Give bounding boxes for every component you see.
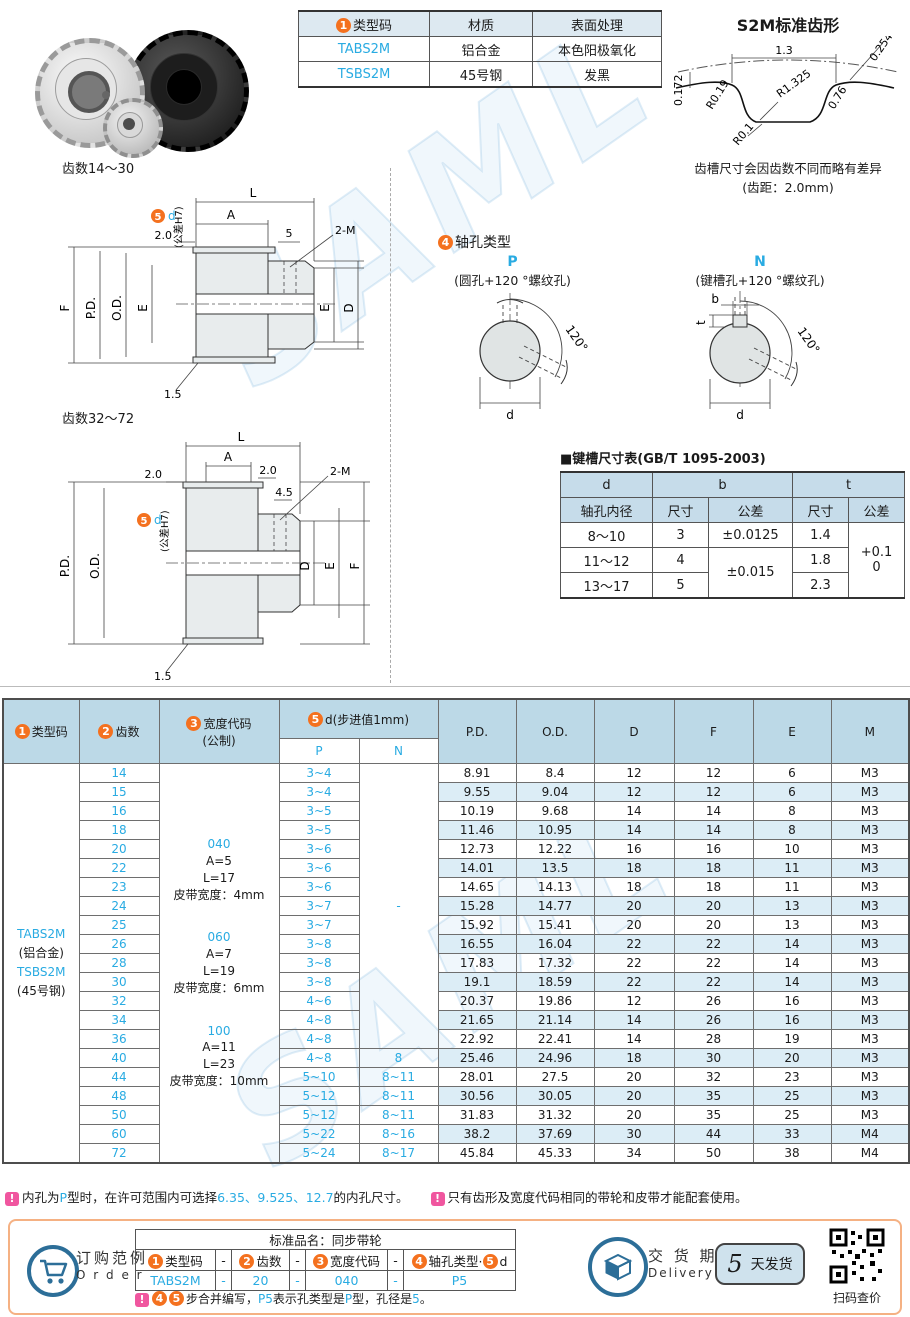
dim-flange-2.0: 2.0 (155, 229, 173, 242)
pd-cell: 17.83 (438, 954, 516, 973)
circled-1: 1 (336, 18, 351, 33)
header-p: P (279, 739, 359, 764)
header-teeth: 2齿数 (79, 699, 159, 764)
circled-4: 4 (438, 235, 453, 250)
shaft-hole-title: 4轴孔类型 (438, 232, 511, 252)
keyway-b-size: 3 (653, 523, 709, 548)
f-cell: 14 (674, 802, 753, 821)
od-cell: 9.04 (516, 783, 594, 802)
tol-line: 0 (849, 560, 904, 575)
pd-cell: 38.2 (438, 1125, 516, 1144)
e-cell: 33 (753, 1125, 831, 1144)
od-cell: 22.41 (516, 1030, 594, 1049)
od-cell: 16.04 (516, 935, 594, 954)
dim-2m: 2-M (335, 224, 355, 237)
dim-pitch: 1.3 (775, 44, 793, 57)
f-cell: 30 (674, 1049, 753, 1068)
table-row: 505~128~1131.8331.32203525M3 (3, 1106, 909, 1125)
circled-2: 2 (239, 1254, 254, 1269)
p-range-cell: 3~8 (279, 973, 359, 992)
m-cell: M3 (831, 840, 909, 859)
table-row: 283~817.8317.32222214M3 (3, 954, 909, 973)
e-cell: 11 (753, 859, 831, 878)
pd-cell: 9.55 (438, 783, 516, 802)
n-range-cell: 8 (359, 1049, 438, 1068)
order-product-name: 标准品名：同步带轮 (136, 1230, 516, 1250)
materials-header-material: 材质 (430, 11, 533, 37)
teeth-cell: 28 (79, 954, 159, 973)
p-range-cell: 3~4 (279, 783, 359, 802)
teeth-cell: 18 (79, 821, 159, 840)
dim-E-left: E (136, 304, 150, 312)
pd-cell: 31.83 (438, 1106, 516, 1125)
dash: - (216, 1250, 232, 1271)
order-header-4: 4轴孔类型·5d (404, 1250, 516, 1271)
e-cell: 13 (753, 916, 831, 935)
catalog-page: SAML SAML 1类型码 材质 表面处理 TABS2M 铝合金 本色阳极氧化 (0, 0, 910, 1317)
e-cell: 16 (753, 1011, 831, 1030)
pd-cell: 15.92 (438, 916, 516, 935)
d-cell: 18 (594, 1049, 674, 1068)
e-cell: 14 (753, 935, 831, 954)
dim-D: D (342, 303, 356, 312)
f-cell: 22 (674, 935, 753, 954)
d-cell: 20 (594, 916, 674, 935)
teeth-cell: 36 (79, 1030, 159, 1049)
pd-cell: 22.92 (438, 1030, 516, 1049)
table-row: 1类型码 材质 表面处理 (299, 11, 662, 37)
dim-t: t (694, 320, 708, 325)
keyway-table-title: ■键槽尺寸表(GB/T 1095-2003) (560, 448, 905, 467)
dim-2m: 2-M (330, 465, 350, 478)
drawing1: 2-M L A 2.0 5 5 d (公差H7) F P.D. O.D. E (48, 172, 390, 404)
surface-value: 发黑 (533, 62, 662, 88)
table-row: 303~819.118.59222214M3 (3, 973, 909, 992)
pd-cell: 20.37 (438, 992, 516, 1011)
table-row: 404~8825.4624.96183020M3 (3, 1049, 909, 1068)
table-row: 445~108~1128.0127.5203223M3 (3, 1068, 909, 1087)
od-cell: 8.4 (516, 764, 594, 783)
teeth-cell: 22 (79, 859, 159, 878)
f-cell: 50 (674, 1144, 753, 1164)
m-cell: M3 (831, 992, 909, 1011)
f-cell: 12 (674, 764, 753, 783)
p-range-cell: 3~7 (279, 897, 359, 916)
warning-icon: ! (431, 1192, 445, 1206)
dim-120deg: 120° (795, 325, 823, 357)
keyway-header-d: d (561, 472, 653, 498)
product-photo (15, 10, 280, 150)
m-cell: M3 (831, 821, 909, 840)
f-cell: 35 (674, 1106, 753, 1125)
p-range-cell: 3~4 (279, 764, 359, 783)
circled-5: 5 (155, 212, 162, 223)
dim-E-right: E (318, 304, 332, 312)
pd-cell: 10.19 (438, 802, 516, 821)
teeth-cell: 40 (79, 1049, 159, 1068)
table-row: 153~49.559.0412126M3 (3, 783, 909, 802)
p-range-cell: 5~24 (279, 1144, 359, 1164)
teeth-cell: 44 (79, 1068, 159, 1087)
hole-type-p-diagram: 120° d (415, 289, 610, 424)
table-row: 324~620.3719.86122616M3 (3, 992, 909, 1011)
header-width-code: 3宽度代码(公制) (159, 699, 279, 764)
od-cell: 14.13 (516, 878, 594, 897)
dash: - (290, 1271, 306, 1291)
order-header-2: 2齿数 (232, 1250, 290, 1271)
keyway-header-tol: 公差 (849, 498, 905, 523)
e-cell: 13 (753, 897, 831, 916)
f-cell: 18 (674, 859, 753, 878)
keyway-d-range: 8～10 (561, 523, 653, 548)
order-value-type: TABS2M (136, 1271, 216, 1291)
warning-icon: ! (135, 1293, 149, 1307)
pd-cell: 14.65 (438, 878, 516, 897)
dim-flank: 0.76 (826, 84, 850, 112)
d-cell: 14 (594, 1011, 674, 1030)
od-cell: 21.14 (516, 1011, 594, 1030)
n-range-cell: 8~16 (359, 1125, 438, 1144)
table-row: 183~511.4610.9514148M3 (3, 821, 909, 840)
od-cell: 30.05 (516, 1087, 594, 1106)
teeth-cell: 23 (79, 878, 159, 897)
p-range-cell: 4~8 (279, 1011, 359, 1030)
dim-1.5: 1.5 (154, 670, 172, 683)
delivery-label-en: Delivery (648, 1266, 718, 1280)
e-cell: 19 (753, 1030, 831, 1049)
pd-cell: 21.65 (438, 1011, 516, 1030)
od-cell: 9.68 (516, 802, 594, 821)
materials-header-type: 1类型码 (299, 11, 430, 37)
e-cell: 11 (753, 878, 831, 897)
header-E: E (753, 699, 831, 764)
dim-r-root: R0.1 (730, 120, 756, 148)
table-row: 725~248~1745.8445.33345038M4 (3, 1144, 909, 1164)
p-range-cell: 3~5 (279, 821, 359, 840)
m-cell: M3 (831, 764, 909, 783)
e-cell: 8 (753, 821, 831, 840)
f-cell: 28 (674, 1030, 753, 1049)
table-row: 485~128~1130.5630.05203525M3 (3, 1087, 909, 1106)
p-range-cell: 5~12 (279, 1106, 359, 1125)
header-d: 5d(步进值1mm) (279, 699, 438, 739)
keyway-b-size: 4 (653, 548, 709, 573)
pd-cell: 30.56 (438, 1087, 516, 1106)
teeth-cell: 20 (79, 840, 159, 859)
m-cell: M3 (831, 1106, 909, 1125)
keyway-section: ■键槽尺寸表(GB/T 1095-2003) d b t 轴孔内径 尺寸 公差 … (560, 448, 905, 599)
f-cell: 16 (674, 840, 753, 859)
od-cell: 19.86 (516, 992, 594, 1011)
f-cell: 26 (674, 992, 753, 1011)
circled-5: 5 (308, 712, 323, 727)
surface-value: 本色阳极氧化 (533, 37, 662, 62)
d-cell: 18 (594, 859, 674, 878)
d-cell: 22 (594, 935, 674, 954)
order-value-teeth: 20 (232, 1271, 290, 1291)
keyway-b-tol: ±0.015 (709, 548, 793, 599)
e-cell: 25 (753, 1087, 831, 1106)
main-selection-table: 1类型码 2齿数 3宽度代码(公制) 5d(步进值1mm) P.D. O.D. … (2, 698, 910, 1164)
dim-5: 5 (286, 227, 293, 240)
header-type-code: 1类型码 (3, 699, 79, 764)
delivery-label-cn: 交 货 期 (648, 1245, 718, 1266)
qr-caption: 扫码查价 (828, 1289, 886, 1306)
p-range-cell: 3~7 (279, 916, 359, 935)
order-example-table: 标准品名：同步带轮 1类型码 - 2齿数 - 3宽度代码 - 4轴孔类型·5d … (135, 1229, 516, 1291)
materials-table: 1类型码 材质 表面处理 TABS2M 铝合金 本色阳极氧化 TSBS2M 45… (298, 10, 662, 88)
p-range-cell: 3~8 (279, 935, 359, 954)
tooth-profile-section: S2M标准齿形 1.3 0.254 R1.325 R0.19 0.76 0.17… (668, 12, 908, 198)
dim-r-main: R1.325 (774, 67, 813, 101)
d-cell: 20 (594, 1106, 674, 1125)
header-pd: P.D. (438, 699, 516, 764)
m-cell: M3 (831, 1087, 909, 1106)
hole-type-n-desc: (键槽孔+120 °螺纹孔) (625, 270, 895, 289)
p-range-cell: 5~22 (279, 1125, 359, 1144)
hole-type-n-code: N (625, 254, 895, 270)
p-range-cell: 4~6 (279, 992, 359, 1011)
dash: - (290, 1250, 306, 1271)
pd-cell: 14.01 (438, 859, 516, 878)
dim-tolerance: (公差H7) (158, 510, 171, 552)
dash: - (388, 1271, 404, 1291)
width-code-cell: 040A=5L=17皮带宽度：4mm060A=7L=19皮带宽度：6mm100A… (159, 764, 279, 1164)
teeth-cell: 50 (79, 1106, 159, 1125)
tol-line: +0.1 (849, 545, 904, 560)
pd-cell: 12.73 (438, 840, 516, 859)
table-row: 1类型码 - 2齿数 - 3宽度代码 - 4轴孔类型·5d (136, 1250, 516, 1271)
dim-F: F (58, 304, 72, 311)
p-range-cell: 3~5 (279, 802, 359, 821)
type-code-cell: TABS2M(铝合金)TSBS2M(45号钢) (3, 764, 79, 1164)
keyway-d-range: 11～12 (561, 548, 653, 573)
m-cell: M3 (831, 1049, 909, 1068)
teeth-cell: 26 (79, 935, 159, 954)
keyway-t-size: 1.8 (793, 548, 849, 573)
od-cell: 45.33 (516, 1144, 594, 1164)
d-cell: 18 (594, 878, 674, 897)
circled-1: 1 (148, 1254, 163, 1269)
n-range-cell: 8~11 (359, 1087, 438, 1106)
table-row: TABS2M - 20 - 040 - P5 (136, 1271, 516, 1291)
pd-cell: 45.84 (438, 1144, 516, 1164)
dim-PD: P.D. (58, 555, 72, 577)
d-cell: 14 (594, 1030, 674, 1049)
footnotes: !内孔为P型时，在许可范围内可选择6.35、9.525、12.7的内孔尺寸。 !… (5, 1187, 907, 1206)
od-cell: 37.69 (516, 1125, 594, 1144)
m-cell: M3 (831, 1011, 909, 1030)
table-row: 163~510.199.6814148M3 (3, 802, 909, 821)
od-cell: 14.77 (516, 897, 594, 916)
od-cell: 17.32 (516, 954, 594, 973)
d-cell: 20 (594, 1068, 674, 1087)
keyway-header-tol: 公差 (709, 498, 793, 523)
dim-left-2.0: 2.0 (145, 468, 163, 481)
order-value-hole: P5 (404, 1271, 516, 1291)
order-box: 订购范例 O r d e r 标准品名：同步带轮 1类型码 - 2齿数 - 3宽… (8, 1219, 902, 1315)
teeth-cell: 72 (79, 1144, 159, 1164)
dim-land: 0.172 (672, 75, 685, 107)
d-cell: 14 (594, 821, 674, 840)
materials-header-surface: 表面处理 (533, 11, 662, 37)
header-F: F (674, 699, 753, 764)
m-cell: M3 (831, 878, 909, 897)
od-cell: 10.95 (516, 821, 594, 840)
dim-b: b (711, 292, 719, 306)
f-cell: 44 (674, 1125, 753, 1144)
dim-PD: P.D. (84, 297, 98, 319)
d-cell: 34 (594, 1144, 674, 1164)
keyway-d-range: 13～17 (561, 573, 653, 599)
f-cell: 22 (674, 973, 753, 992)
table-row: d b t (561, 472, 905, 498)
od-cell: 12.22 (516, 840, 594, 859)
circled-5: 5 (169, 1291, 184, 1306)
dim-d: d (736, 408, 744, 422)
circled-5: 5 (483, 1254, 498, 1269)
teeth-cell: 48 (79, 1087, 159, 1106)
type-code-value: TSBS2M (299, 62, 430, 88)
pd-cell: 8.91 (438, 764, 516, 783)
f-cell: 32 (674, 1068, 753, 1087)
od-cell: 18.59 (516, 973, 594, 992)
circled-3: 3 (313, 1254, 328, 1269)
m-cell: M4 (831, 1125, 909, 1144)
table-row: 364~822.9222.41142819M3 (3, 1030, 909, 1049)
table-row: TSBS2M 45号钢 发黑 (299, 62, 662, 88)
e-cell: 25 (753, 1106, 831, 1125)
pd-cell: 15.28 (438, 897, 516, 916)
warning-icon: ! (5, 1192, 19, 1206)
dim-4.5: 4.5 (275, 486, 293, 499)
table-row: 253~715.9215.41202013M3 (3, 916, 909, 935)
d-cell: 22 (594, 954, 674, 973)
circled-3: 3 (186, 716, 201, 731)
table-row: TABS2M 铝合金 本色阳极氧化 (299, 37, 662, 62)
dim-right-2.0: 2.0 (259, 464, 277, 477)
f-cell: 14 (674, 821, 753, 840)
section-divider (390, 168, 391, 683)
hole-type-p-code: P (415, 254, 610, 270)
od-cell: 13.5 (516, 859, 594, 878)
dim-A: A (227, 208, 236, 222)
d-cell: 30 (594, 1125, 674, 1144)
tooth-profile-title: S2M标准齿形 (668, 12, 908, 36)
small-pulley-image (103, 98, 163, 158)
teeth-cell: 32 (79, 992, 159, 1011)
e-cell: 20 (753, 1049, 831, 1068)
e-cell: 6 (753, 783, 831, 802)
p-range-cell: 3~6 (279, 840, 359, 859)
od-cell: 24.96 (516, 1049, 594, 1068)
f-cell: 35 (674, 1087, 753, 1106)
m-cell: M3 (831, 783, 909, 802)
teeth-cell: 16 (79, 802, 159, 821)
keyway-header-size: 尺寸 (653, 498, 709, 523)
dim-1.5: 1.5 (164, 388, 182, 401)
e-cell: 8 (753, 802, 831, 821)
dim-A: A (224, 450, 233, 464)
od-cell: 31.32 (516, 1106, 594, 1125)
m-cell: M3 (831, 916, 909, 935)
d-cell: 12 (594, 992, 674, 1011)
delivery-box-icon (588, 1237, 648, 1297)
e-cell: 16 (753, 992, 831, 1011)
n-range-cell: 8~11 (359, 1068, 438, 1087)
keyway-t-tol: +0.1 0 (849, 523, 905, 599)
m-cell: M4 (831, 1144, 909, 1164)
p-range-cell: 3~6 (279, 878, 359, 897)
dim-d: d (506, 408, 514, 422)
p-range-cell: 3~8 (279, 954, 359, 973)
tooth-profile-note: 齿槽尺寸会因齿数不同而略有差异 (齿距：2.0mm) (668, 160, 908, 198)
e-cell: 14 (753, 973, 831, 992)
header-M: M (831, 699, 909, 764)
dash: - (216, 1271, 232, 1291)
d-cell: 14 (594, 802, 674, 821)
od-cell: 27.5 (516, 1068, 594, 1087)
m-cell: M3 (831, 859, 909, 878)
dim-D: D (298, 561, 312, 570)
dim-tolerance: (公差H7) (172, 206, 185, 248)
header-D: D (594, 699, 674, 764)
header-od: O.D. (516, 699, 594, 764)
circled-2: 2 (98, 724, 113, 739)
cart-icon (27, 1245, 79, 1297)
dash: - (388, 1250, 404, 1271)
table-row: 203~612.7312.22161610M3 (3, 840, 909, 859)
pd-cell: 19.1 (438, 973, 516, 992)
table-row: 233~614.6514.13181811M3 (3, 878, 909, 897)
keyway-b-tol: ±0.0125 (709, 523, 793, 548)
dim-depth: 0.254 (867, 36, 896, 64)
note-line: (齿距：2.0mm) (668, 179, 908, 198)
type-code-value: TABS2M (299, 37, 430, 62)
d-cell: 12 (594, 783, 674, 802)
teeth-cell: 15 (79, 783, 159, 802)
hole-type-n-diagram: b t 120° d (625, 289, 895, 424)
f-cell: 26 (674, 1011, 753, 1030)
keyway-table: d b t 轴孔内径 尺寸 公差 尺寸 公差 8～10 3 ±0.0125 1.… (560, 471, 905, 599)
teeth-cell: 34 (79, 1011, 159, 1030)
order-note: !45步合并编写，P5表示孔类型是P型，孔径是5。 (135, 1290, 432, 1307)
f-cell: 20 (674, 916, 753, 935)
p-range-cell: 4~8 (279, 1030, 359, 1049)
e-cell: 10 (753, 840, 831, 859)
drawing2: 2-M L A 2.0 2.0 4.5 5 d (公差H7) P.D. O.D. (48, 420, 390, 688)
teeth-cell: 60 (79, 1125, 159, 1144)
header-n: N (359, 739, 438, 764)
circled-4: 4 (152, 1291, 167, 1306)
dim-L: L (238, 430, 245, 444)
table-row: TABS2M(铝合金)TSBS2M(45号钢)14040A=5L=17皮带宽度：… (3, 764, 909, 783)
pd-cell: 28.01 (438, 1068, 516, 1087)
circled-5: 5 (141, 516, 148, 527)
keyway-t-size: 2.3 (793, 573, 849, 599)
table-header-row: 1类型码 2齿数 3宽度代码(公制) 5d(步进值1mm) P.D. O.D. … (3, 699, 909, 739)
shaft-hole-p: P (圆孔+120 °螺纹孔) 120° d (415, 254, 610, 428)
teeth-cell: 24 (79, 897, 159, 916)
hole-type-p-desc: (圆孔+120 °螺纹孔) (415, 270, 610, 289)
d-cell: 20 (594, 1087, 674, 1106)
keyway-header-size: 尺寸 (793, 498, 849, 523)
qr-code: 扫码查价 (828, 1227, 886, 1306)
circled-1: 1 (15, 724, 30, 739)
e-cell: 38 (753, 1144, 831, 1164)
table-row: 标准品名：同步带轮 (136, 1230, 516, 1250)
pd-cell: 11.46 (438, 821, 516, 840)
